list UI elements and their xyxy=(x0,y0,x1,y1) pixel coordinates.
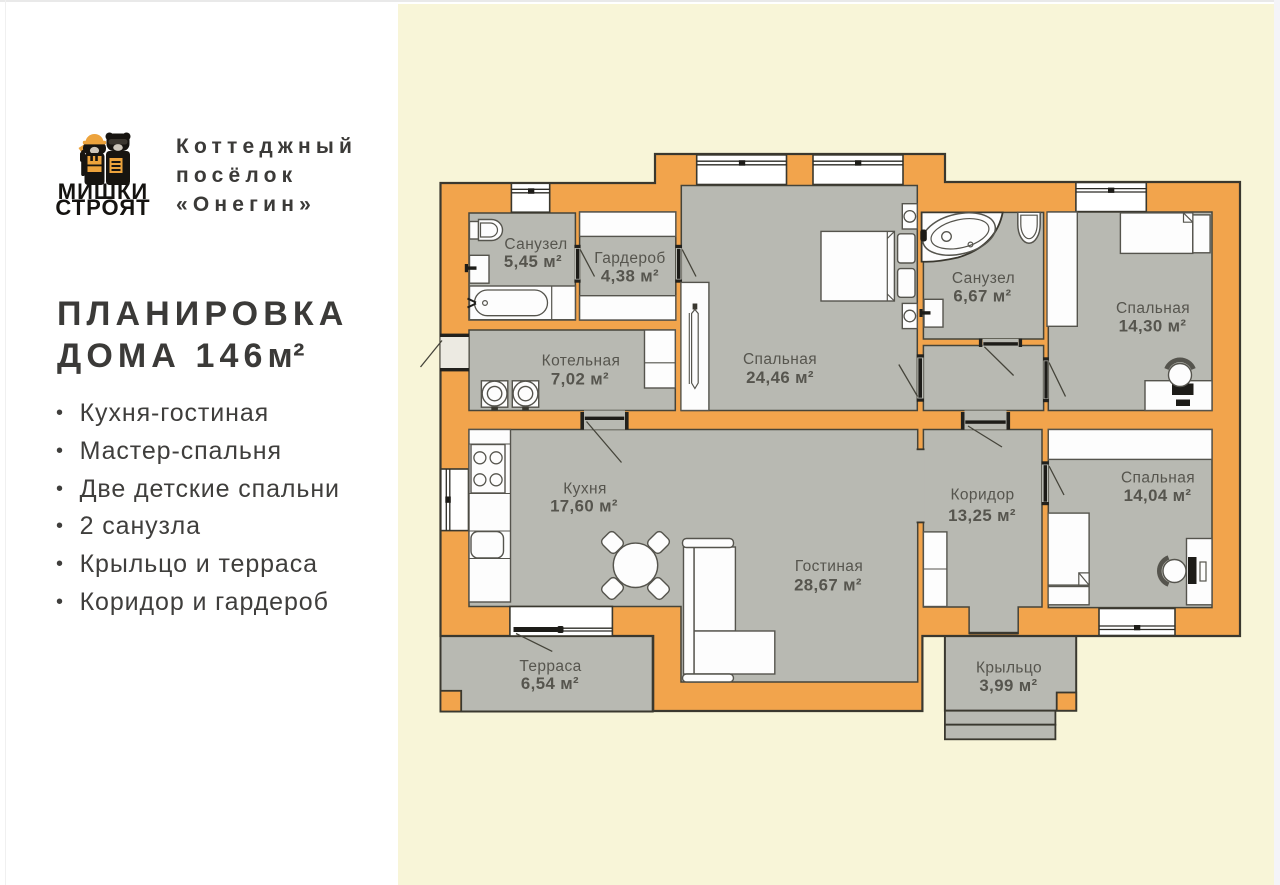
svg-text:7,02 м²: 7,02 м² xyxy=(551,370,609,389)
svg-text:5,45 м²: 5,45 м² xyxy=(504,252,562,271)
svg-text:Гостиная: Гостиная xyxy=(795,558,863,575)
svg-text:14,30 м²: 14,30 м² xyxy=(1119,317,1187,336)
svg-text:Санузел: Санузел xyxy=(952,270,1015,287)
svg-text:Терраса: Терраса xyxy=(519,658,581,675)
svg-text:6,67 м²: 6,67 м² xyxy=(953,287,1011,306)
svg-text:Спальная: Спальная xyxy=(1121,470,1195,487)
svg-text:Котельная: Котельная xyxy=(542,353,621,370)
svg-text:Спальная: Спальная xyxy=(1116,300,1190,317)
svg-text:Спальная: Спальная xyxy=(743,351,817,368)
svg-text:6,54 м²: 6,54 м² xyxy=(521,674,579,693)
svg-text:3,99 м²: 3,99 м² xyxy=(979,676,1037,695)
svg-text:Крыльцо: Крыльцо xyxy=(976,660,1042,677)
svg-text:14,04 м²: 14,04 м² xyxy=(1124,486,1192,505)
svg-text:Гардероб: Гардероб xyxy=(594,250,665,267)
svg-text:24,46 м²: 24,46 м² xyxy=(746,368,814,387)
svg-text:Кухня: Кухня xyxy=(563,481,606,498)
svg-text:Санузел: Санузел xyxy=(504,236,567,253)
svg-text:17,60 м²: 17,60 м² xyxy=(550,497,618,516)
svg-text:Коридор: Коридор xyxy=(950,487,1014,504)
svg-text:4,38 м²: 4,38 м² xyxy=(601,267,659,286)
svg-text:28,67 м²: 28,67 м² xyxy=(794,576,862,595)
svg-text:13,25 м²: 13,25 м² xyxy=(948,506,1016,525)
